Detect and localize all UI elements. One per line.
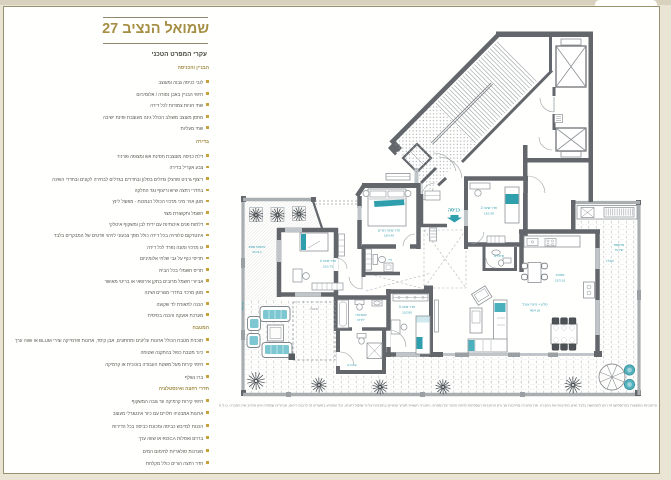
svg-text:12/3.10: 12/3.10 [555,279,565,283]
svg-text:11/2.80: 11/2.80 [402,311,412,315]
svg-text:שירותים: שירותים [494,254,505,258]
svg-text:שירותים: שירותים [347,363,357,367]
svg-text:מרפסת שמש: מרפסת שמש [249,245,266,249]
svg-text:מטבח: מטבח [556,273,565,277]
svg-text:40/4.35: 40/4.35 [530,309,541,313]
svg-text:חדר שינה 4: חדר שינה 4 [320,259,337,263]
svg-text:87/12.4: 87/12.4 [253,250,262,254]
svg-text:13/2.90: 13/2.90 [484,212,494,216]
svg-text:אמבטיה: אמבטיה [356,313,367,317]
svg-text:מרפסת: מרפסת [614,243,624,247]
svg-text:חדר שינה הורים: חדר שינה הורים [378,229,401,233]
svg-text:17/8.0: 17/8.0 [606,259,614,263]
svg-text:סלון + פינת אוכל: סלון + פינת אוכל [522,303,548,307]
svg-text:10/2.75: 10/2.75 [323,265,333,269]
svg-text:16/3.40: 16/3.40 [384,234,394,238]
svg-text:חדר שינה 2: חדר שינה 2 [481,206,498,210]
svg-text:מרפסת: מרפסת [241,302,245,311]
svg-text:פרגולה: פרגולה [310,307,319,311]
svg-text:ילדים: ילדים [357,318,364,322]
svg-text:שירות: שירות [615,248,624,252]
svg-text:כניסה: כניסה [448,208,461,213]
svg-text:התוכניות המוצגות בפרוספקט זה ה: התוכניות המוצגות בפרוספקט זה הינן להמחשה… [219,404,657,408]
svg-text:שיר: שיר [388,259,392,262]
svg-text:חדר שינה 3: חדר שינה 3 [399,305,416,309]
